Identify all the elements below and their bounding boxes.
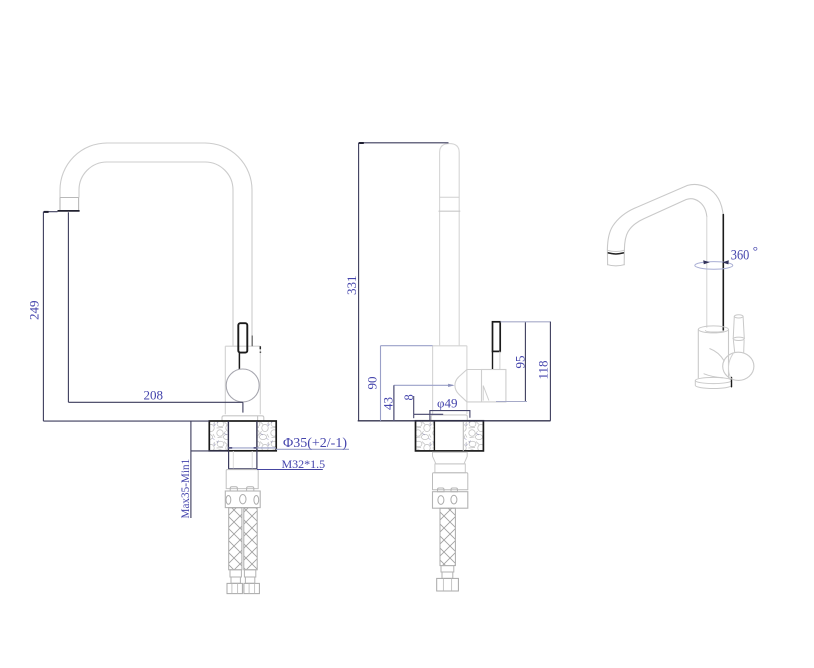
svg-text:360: 360 <box>731 247 750 263</box>
svg-text:°: ° <box>753 243 758 258</box>
svg-text:8: 8 <box>402 394 416 400</box>
svg-text:90: 90 <box>365 377 380 390</box>
svg-text:M32*1.5: M32*1.5 <box>282 457 326 471</box>
svg-text:331: 331 <box>344 276 359 296</box>
svg-text:φ49: φ49 <box>437 396 458 411</box>
svg-text:208: 208 <box>144 388 164 403</box>
svg-text:118: 118 <box>536 360 551 379</box>
svg-text:249: 249 <box>27 301 42 321</box>
svg-text:43: 43 <box>381 397 396 410</box>
svg-text:95: 95 <box>513 356 528 369</box>
svg-text:Max35-Min1: Max35-Min1 <box>180 459 192 519</box>
svg-text:Φ35(+2/-1): Φ35(+2/-1) <box>283 436 347 451</box>
